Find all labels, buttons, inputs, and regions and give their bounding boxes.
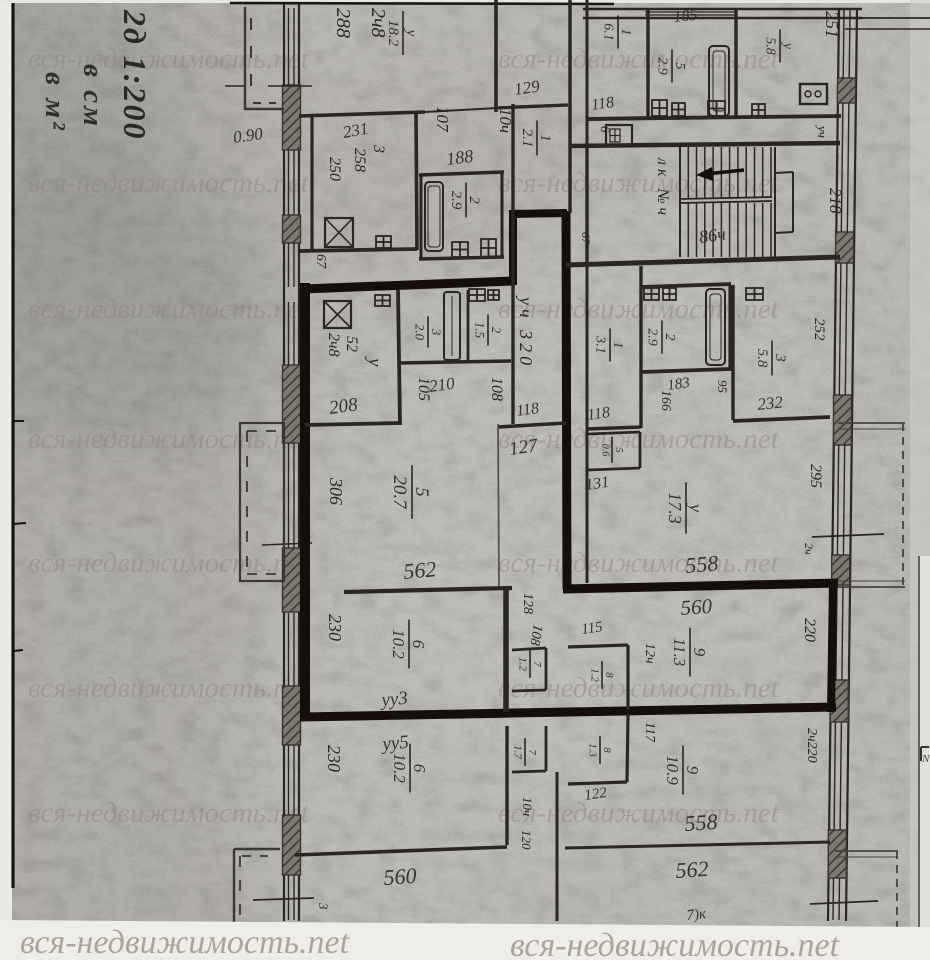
svg-text:2.0: 2.0 [413,324,428,341]
svg-text:у: у [403,28,419,37]
svg-text:1.3: 1.3 [587,743,599,757]
svg-text:N: N [921,753,930,765]
svg-text:вся-недвижимость.net: вся-недвижимость.net [498,547,780,579]
svg-text:вся-недвижимость.net: вся-недвижимость.net [28,167,310,199]
svg-text:2: 2 [489,327,504,334]
svg-text:вся-недвижимость.net: вся-недвижимость.net [498,672,780,704]
svg-text:108: 108 [488,377,505,401]
svg-text:2д 1:200: 2д 1:200 [117,9,153,141]
svg-text:306: 306 [326,477,346,505]
svg-text:3: 3 [316,902,331,910]
svg-text:3: 3 [370,144,387,153]
svg-text:уу3: уу3 [379,688,409,711]
svg-text:2: 2 [662,334,677,341]
svg-text:у: у [364,356,385,367]
svg-text:5: 5 [613,448,624,453]
svg-text:129: 129 [513,77,541,99]
svg-text:0.6: 0.6 [600,444,611,457]
svg-text:вся-недвижимость.net: вся-недвижимость.net [28,797,310,829]
svg-text:8: 8 [601,747,613,753]
svg-text:122: 122 [583,785,608,804]
svg-text:118: 118 [590,94,615,114]
svg-text:вся-недвижимость.net: вся-недвижимость.net [28,293,310,325]
svg-text:250: 250 [326,157,343,181]
svg-text:1: 1 [618,29,633,36]
svg-text:17.3: 17.3 [665,492,685,524]
svg-text:288: 288 [332,8,354,38]
svg-text:11.3: 11.3 [670,638,689,667]
svg-text:105: 105 [415,377,432,401]
svg-text:67: 67 [579,232,593,245]
svg-text:в см: в см [77,64,109,129]
svg-text:188: 188 [445,146,474,169]
svg-text:6: 6 [410,764,429,773]
svg-text:560: 560 [680,594,714,620]
svg-text:10.2: 10.2 [390,753,409,783]
svg-text:7: 7 [531,661,543,667]
svg-text:20.7: 20.7 [389,475,410,510]
svg-text:208: 208 [328,394,360,419]
svg-text:вся-недвижимость.net: вся-недвижимость.net [28,672,310,704]
svg-text:2ч220: 2ч220 [804,728,819,763]
svg-text:2.9: 2.9 [645,328,660,346]
svg-text:117: 117 [642,722,657,743]
svg-text:1.5: 1.5 [473,322,488,339]
svg-text:5.8: 5.8 [754,349,770,368]
svg-text:вся-недвижимость.net: вся-недвижимость.net [28,43,310,75]
svg-text:2.9: 2.9 [655,57,670,75]
svg-text:8: 8 [603,672,615,678]
svg-text:2.1: 2.1 [519,129,535,148]
svg-text:7: 7 [526,749,538,755]
svg-text:уч 320: уч 320 [516,295,536,369]
svg-text:10.9: 10.9 [663,755,682,785]
svg-text:115: 115 [580,619,604,638]
svg-text:7)к: 7)к [686,906,708,924]
svg-text:107: 107 [433,106,452,133]
svg-text:6: 6 [409,640,428,649]
svg-text:230: 230 [325,614,345,641]
svg-text:18.2: 18.2 [385,20,401,47]
svg-text:295: 295 [807,464,824,488]
svg-text:2: 2 [466,196,482,204]
svg-text:1.7: 1.7 [512,745,524,759]
svg-text:вся-недвижимость.net: вся-недвижимость.net [498,797,780,829]
svg-text:10.2: 10.2 [389,629,408,659]
svg-text:252: 252 [811,318,827,341]
svg-text:1: 1 [537,134,553,142]
svg-text:10ч: 10ч [520,797,535,816]
svg-text:1.2: 1.2 [589,668,601,682]
svg-text:120: 120 [519,830,534,850]
svg-text:вся-недвижимость.net: вся-недвижимость.net [20,924,351,960]
svg-text:67: 67 [313,254,328,269]
svg-text:2ч: 2ч [802,543,816,555]
svg-text:у: у [780,41,795,50]
svg-text:5.8: 5.8 [763,37,778,55]
svg-text:230: 230 [324,745,344,772]
svg-text:86ч: 86ч [698,223,727,247]
svg-text:9: 9 [690,648,709,657]
svg-text:вся-недвижимость.net: вся-недвижимость.net [510,927,841,960]
svg-text:1: 1 [610,342,625,349]
svg-text:218: 218 [826,188,845,214]
svg-text:3.1: 3.1 [593,335,608,354]
svg-text:185: 185 [673,7,699,26]
svg-text:232: 232 [756,392,784,414]
svg-text:2ч8: 2ч8 [325,333,342,357]
svg-text:6: 6 [598,126,613,133]
svg-text:131: 131 [584,474,610,494]
svg-text:уч: уч [815,124,830,138]
svg-text:258: 258 [351,148,368,172]
svg-text:220: 220 [801,618,818,642]
svg-text:3: 3 [772,353,788,362]
svg-text:558: 558 [684,550,719,578]
svg-text:118: 118 [586,404,611,424]
svg-text:уу5: уу5 [380,732,410,755]
svg-text:5: 5 [672,63,687,70]
svg-text:251: 251 [822,11,842,38]
svg-text:лк №ч: лк №ч [654,157,671,219]
svg-text:562: 562 [402,556,437,584]
svg-text:в м²: в м² [39,72,71,133]
svg-text:3: 3 [429,328,444,336]
svg-text:12ч: 12ч [642,643,657,664]
svg-text:вся-недвижимость.net: вся-недвижимость.net [498,293,780,325]
svg-text:у: у [686,502,706,512]
svg-text:5: 5 [411,487,432,497]
svg-text:10ч: 10ч [496,108,515,133]
svg-text:6.1: 6.1 [601,23,616,41]
svg-text:166: 166 [658,390,673,411]
svg-text:560: 560 [383,863,418,890]
svg-text:52: 52 [343,336,360,352]
svg-text:562: 562 [675,856,710,883]
svg-text:558: 558 [684,809,719,836]
svg-text:вся-недвижимость.net: вся-недвижимость.net [28,423,310,455]
svg-text:1.2: 1.2 [517,657,529,671]
svg-text:9: 9 [683,766,702,775]
svg-text:128: 128 [520,593,535,614]
svg-text:95: 95 [715,380,730,394]
svg-text:2.9: 2.9 [448,191,464,210]
svg-text:127: 127 [508,435,541,460]
svg-text:118: 118 [515,400,540,420]
